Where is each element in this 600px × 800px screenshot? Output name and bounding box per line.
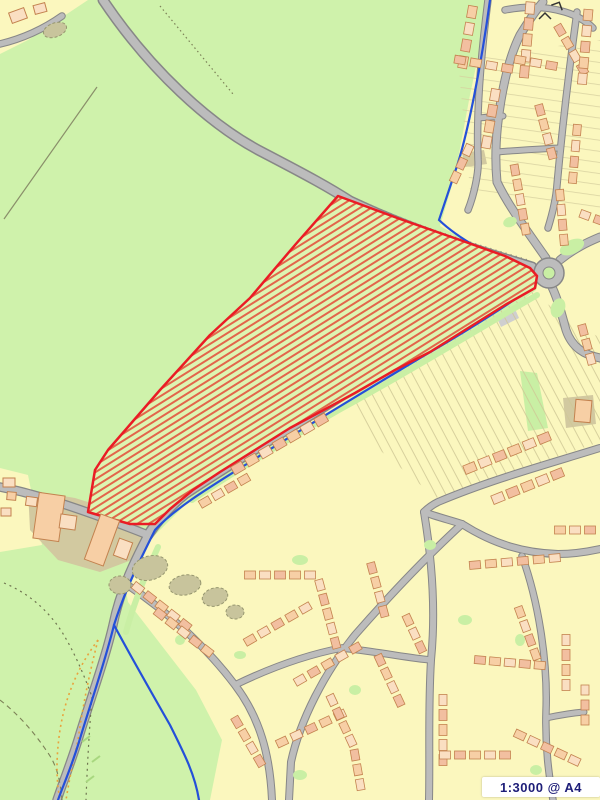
- building-footprint: [59, 514, 77, 530]
- house-footprint: [521, 223, 531, 235]
- house-footprint: [484, 120, 495, 133]
- house-footprint: [439, 710, 447, 721]
- house-footprint: [461, 39, 472, 52]
- house-footprint: [490, 88, 501, 101]
- house-footprint: [583, 9, 593, 21]
- house-footprint: [570, 156, 579, 168]
- house-footprint: [501, 558, 513, 567]
- house-footprint: [545, 61, 557, 71]
- house-footprint: [522, 34, 532, 47]
- house-footprint: [290, 571, 301, 579]
- house-footprint: [350, 749, 360, 761]
- house-footprint: [500, 751, 511, 759]
- building-footprint: [1, 508, 11, 516]
- house-footprint: [534, 661, 546, 670]
- house-footprint: [549, 554, 561, 563]
- house-footprint: [573, 124, 582, 136]
- house-footprint: [487, 104, 498, 117]
- house-footprint: [571, 140, 580, 152]
- house-footprint: [581, 715, 589, 725]
- roundabout-island: [543, 267, 555, 279]
- house-footprint: [585, 526, 596, 534]
- roundabout: [534, 258, 564, 288]
- house-footprint: [579, 57, 589, 69]
- house-footprint: [582, 25, 592, 37]
- house-footprint: [519, 659, 531, 668]
- house-footprint: [570, 526, 581, 534]
- house-footprint: [501, 63, 513, 73]
- house-footprint: [568, 172, 577, 184]
- house-footprint: [525, 2, 535, 15]
- house-footprint: [504, 658, 516, 667]
- scale-label: 1:3000 @ A4: [500, 780, 582, 795]
- house-footprint: [481, 136, 492, 149]
- house-footprint: [562, 635, 570, 646]
- building-footprint: [3, 478, 15, 487]
- house-footprint: [245, 571, 256, 579]
- house-footprint: [517, 556, 529, 565]
- house-footprint: [559, 234, 568, 246]
- house-footprint: [464, 22, 475, 35]
- house-footprint: [485, 61, 497, 71]
- house-footprint: [518, 208, 528, 220]
- house-footprint: [513, 179, 523, 191]
- house-footprint: [439, 725, 447, 736]
- house-footprint: [510, 164, 520, 176]
- house-footprint: [562, 650, 570, 661]
- house-footprint: [514, 55, 526, 65]
- house-footprint: [485, 751, 496, 759]
- house-footprint: [562, 665, 570, 676]
- house-footprint: [305, 571, 316, 579]
- house-footprint: [439, 695, 447, 706]
- house-footprint: [562, 680, 570, 691]
- house-footprint: [439, 740, 447, 751]
- building-footprint: [25, 496, 37, 506]
- tree-canopy-blob: [226, 605, 244, 619]
- building-footprint: [7, 492, 17, 501]
- house-footprint: [524, 18, 534, 31]
- house-footprint: [556, 189, 565, 201]
- house-footprint: [355, 778, 365, 790]
- tree-canopy-blob: [109, 576, 131, 594]
- house-footprint: [581, 700, 589, 710]
- house-footprint: [515, 193, 525, 205]
- house-footprint: [519, 65, 529, 78]
- house-footprint: [577, 73, 587, 85]
- house-footprint: [275, 571, 286, 579]
- map-svg: [0, 0, 600, 800]
- map-canvas[interactable]: 1:3000 @ A4: [0, 0, 600, 800]
- house-footprint: [470, 751, 481, 759]
- house-footprint: [454, 55, 466, 65]
- house-footprint: [455, 751, 466, 759]
- house-footprint: [557, 204, 566, 216]
- house-footprint: [469, 561, 481, 570]
- house-footprint: [533, 555, 545, 564]
- house-footprint: [489, 657, 501, 666]
- building-footprint: [574, 399, 592, 422]
- scale-indicator: 1:3000 @ A4: [482, 777, 600, 797]
- house-footprint: [581, 685, 589, 695]
- house-footprint: [558, 219, 567, 231]
- house-footprint: [440, 751, 451, 759]
- house-footprint: [485, 559, 497, 568]
- house-footprint: [530, 58, 542, 68]
- house-footprint: [467, 5, 478, 18]
- house-footprint: [353, 764, 363, 776]
- house-footprint: [580, 41, 590, 53]
- house-footprint: [555, 526, 566, 534]
- house-footprint: [474, 656, 486, 665]
- house-footprint: [260, 571, 271, 579]
- house-footprint: [470, 58, 482, 68]
